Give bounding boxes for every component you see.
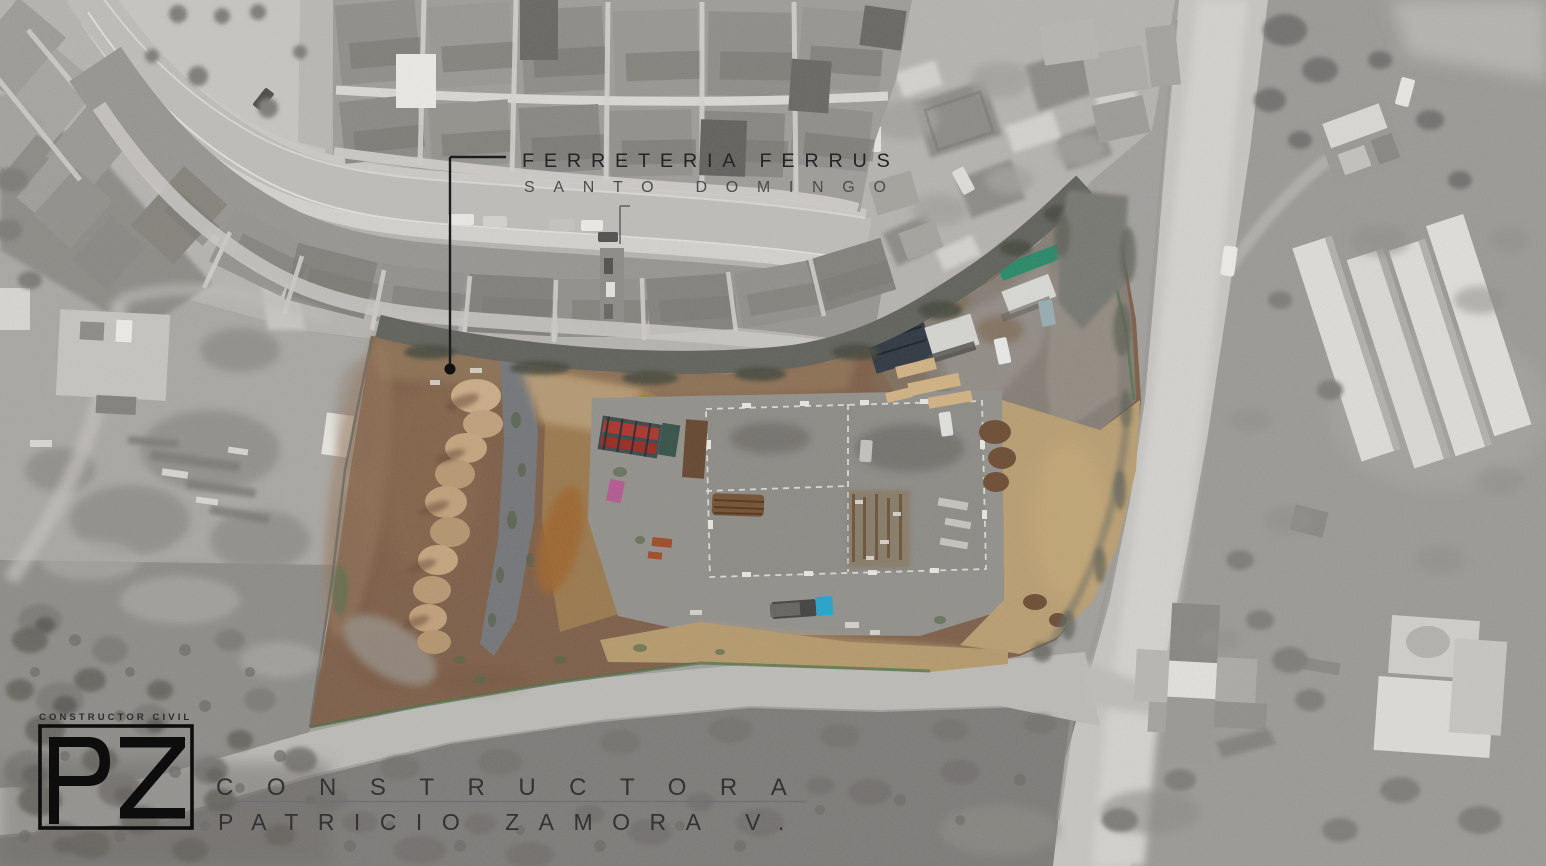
svg-text:PATRICIO ZAMORA V.: PATRICIO ZAMORA V. (218, 809, 804, 835)
svg-text:CONSTRUCTOR CIVIL: CONSTRUCTOR CIVIL (39, 712, 192, 723)
svg-text:CONSTRUCTORA: CONSTRUCTORA (216, 774, 820, 801)
svg-text:FERRETERIA FERRUS: FERRETERIA FERRUS (522, 150, 900, 172)
svg-text:SANTO DOMINGO: SANTO DOMINGO (524, 179, 905, 196)
